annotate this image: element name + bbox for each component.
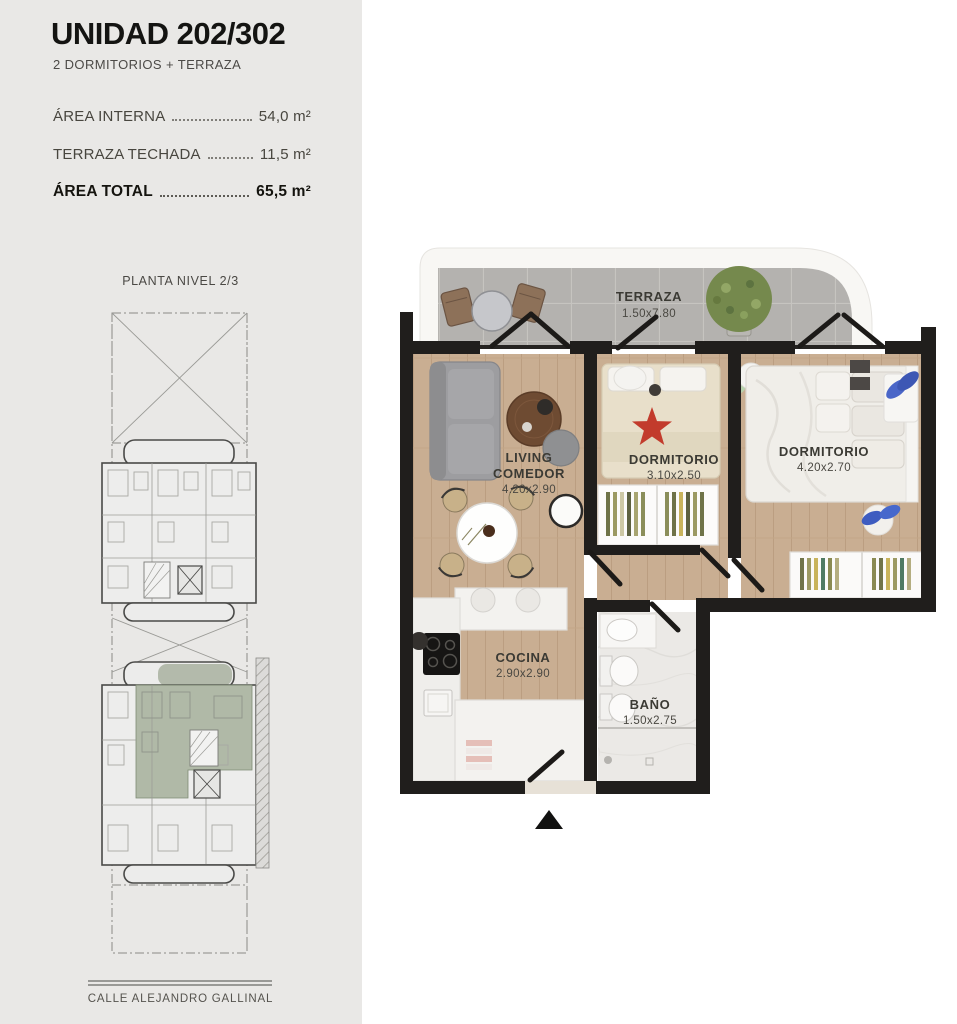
room-label-bano: BAÑO	[630, 697, 671, 712]
street-label: CALLE ALEJANDRO GALLINAL	[38, 993, 323, 1005]
area-label: ÁREA TOTAL	[53, 183, 153, 201]
toilet	[610, 656, 638, 686]
room-label-terraza: TERRAZA	[616, 289, 682, 304]
room-label-living-2: COMEDOR	[493, 466, 565, 481]
upper-building	[102, 440, 256, 621]
wardrobe-2	[790, 552, 932, 598]
bedroom-1: DORMITORIO 3.10x2.50	[598, 364, 720, 545]
side-table	[550, 495, 582, 527]
room-label-dormitorio1: DORMITORIO	[629, 452, 719, 467]
room-dims-living: 4.20x2.90	[502, 484, 556, 496]
site-plan-title: PLANTA NIVEL 2/3	[38, 274, 323, 288]
dots-leader	[172, 119, 251, 121]
wardrobe-1	[598, 485, 718, 545]
area-value: 65,5 m²	[256, 183, 311, 201]
area-label: ÁREA INTERNA	[53, 108, 165, 125]
site-plan-map	[38, 300, 323, 990]
room-dims-dormitorio2: 4.20x2.70	[797, 462, 851, 474]
street-line	[88, 981, 272, 985]
unit-subtitle: 2 DORMITORIOS + TERRAZA	[53, 57, 241, 72]
room-label-dormitorio2: DORMITORIO	[779, 444, 869, 459]
area-row-interna: ÁREA INTERNA 54,0 m²	[53, 102, 311, 125]
room-dims-terraza: 1.50x7.80	[622, 308, 676, 320]
sidebar: UNIDAD 202/302 2 DORMITORIOS + TERRAZA Á…	[0, 0, 362, 1024]
area-label: TERRAZA TECHADA	[53, 146, 201, 163]
dots-leader	[208, 157, 253, 159]
area-value: 54,0 m²	[259, 108, 311, 125]
room-label-living-1: LIVING	[506, 450, 553, 465]
dots-leader	[160, 195, 249, 197]
area-list: ÁREA INTERNA 54,0 m² TERRAZA TECHADA 11,…	[53, 102, 311, 216]
room-dims-bano: 1.50x2.75	[623, 715, 677, 727]
unit-title: UNIDAD 202/302	[51, 16, 285, 52]
void-cross-top	[112, 313, 247, 443]
area-row-terraza: TERRAZA TECHADA 11,5 m²	[53, 140, 311, 163]
room-dims-cocina: 2.90x2.90	[496, 668, 550, 680]
lower-building	[102, 658, 269, 883]
room-label-cocina: COCINA	[496, 650, 551, 665]
area-value: 11,5 m²	[260, 146, 311, 163]
area-row-total: ÁREA TOTAL 65,5 m²	[53, 178, 311, 201]
floor-plan: TERRAZA 1.50x7.80	[390, 228, 957, 868]
north-arrow-icon	[535, 810, 563, 829]
room-dims-dormitorio1: 3.10x2.50	[647, 470, 701, 482]
neighbor-hatch-strip	[256, 658, 269, 868]
terrace: TERRAZA 1.50x7.80	[420, 248, 872, 348]
brochure-page: UNIDAD 202/302 2 DORMITORIOS + TERRAZA Á…	[0, 0, 957, 1024]
